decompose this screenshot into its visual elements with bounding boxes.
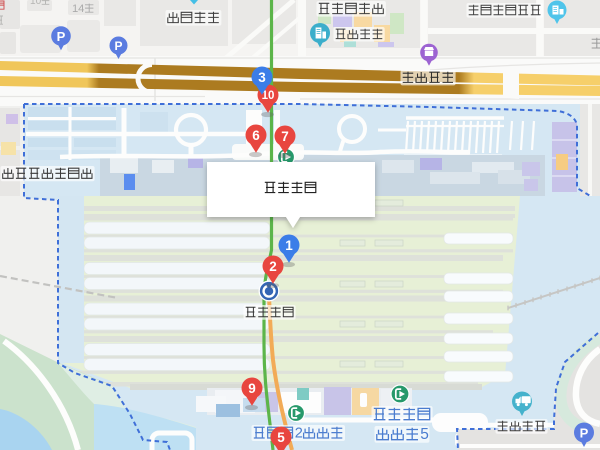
svg-text:2: 2 <box>269 259 277 274</box>
svg-text:9: 9 <box>248 381 256 396</box>
svg-text:2: 2 <box>295 425 303 441</box>
svg-text:7: 7 <box>281 129 289 144</box>
svg-text:P: P <box>580 426 589 441</box>
svg-text:5: 5 <box>420 426 429 443</box>
svg-text:6: 6 <box>252 128 260 143</box>
svg-text:3: 3 <box>258 70 266 85</box>
svg-text:P: P <box>114 39 122 53</box>
svg-text:5: 5 <box>277 430 285 445</box>
svg-text:0: 0 <box>36 0 42 7</box>
svg-text:1: 1 <box>285 238 293 253</box>
svg-text:P: P <box>57 29 66 44</box>
svg-text:4: 4 <box>78 3 84 15</box>
